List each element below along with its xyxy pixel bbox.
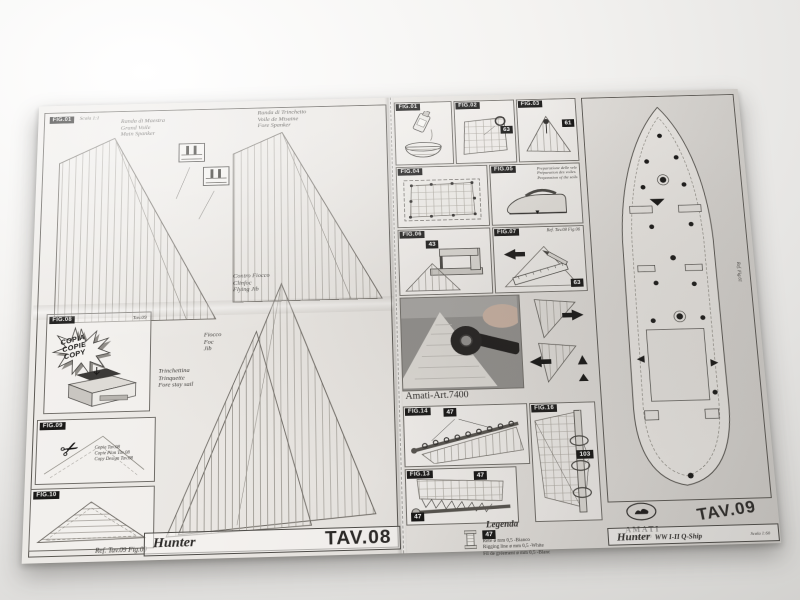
sail-sheet-with-ring [457,109,514,161]
ship-subtitle: WW I-II Q-Ship [655,532,703,541]
fig-label: FIG.06 [400,231,425,239]
cutter-photo-drawing [401,296,522,389]
tav09-deck-column: Ref. Fig.61 AMATI Art.1450 TAV.09 Hunter… [577,89,782,548]
sail-with-pin [519,107,574,159]
deck-plan-drawing [581,94,770,501]
ship-name: Hunter [153,535,196,552]
arrow-down-icon: ▼ [534,210,541,216]
gaff-lacing-panel: FIG.14 47 [403,403,530,467]
hatched-sail-panel: FIG.10 [28,486,155,552]
legend-lines: Refe ø mm 0,5 -BiancoRigging line ø mm 0… [483,537,551,558]
fig-label: FIG.03 [518,101,543,108]
legend-part-number: 47 [482,530,496,539]
bottle-and-bowl-icon [396,110,450,162]
copy-instruction-panel: FIG.08 Tav.09 COPIACOPIECOPY [43,311,151,414]
cut-note: Copia Tav.08Copie Plan Tav.08Copy Design… [94,445,133,463]
part-number: 63 [500,126,513,134]
hatched-sail-drawing [31,493,149,549]
fig-label: FIG.05 [491,166,516,174]
plan-paper: FIG.01 Scala 1:1 Randa di MaestraGrand V… [22,89,782,564]
mast-hoops-panel: FIG.16 103 [529,401,603,522]
boom-lacing-panel: FIG.13 47 47 [405,466,519,525]
part-number: 63 [570,279,583,287]
gaff-lacing-drawing [405,408,526,464]
sewing-machine-icon [401,237,490,293]
tav09-number: TAV.09 [695,497,758,525]
step-panel-sewing: FIG.06 43 [398,228,494,296]
part-number: 61 [562,119,575,127]
sail-arrows-diagram [522,293,592,386]
pinned-sail-board [399,174,486,226]
sail-corner-detail-inset [203,166,230,186]
photo-caption: Amati-Art.7400 [405,390,469,402]
tav08-number: TAV.08 [325,527,392,551]
ship-name: Hunter [617,531,651,544]
part-number-103: 103 [576,450,593,459]
thread-spool-icon [464,530,477,550]
step-panel-tack-pin: FIG.03 61 [516,98,580,162]
photocopier-icon [60,364,144,411]
sail-corner-detail-inset [178,143,205,162]
ref-note: Ref. Tav.09 Fig.09 [95,545,147,554]
step-panel-pinboard: FIG.04 [396,165,490,228]
photo-of-plan-sheets: { "icons": { "scissors": "✂", "arrow_dow… [0,0,800,600]
scale-note: Scala 1:1 [80,116,100,122]
iron-note: Preparazione delle velePréparation des v… [537,165,578,180]
step-panel-marking: FIG.07 Ref. Tav.08 Fig.06 63 [492,225,588,293]
cut-instruction-panel: FIG.09 ✂ Copia Tav.08Copie Plan Tav.08Co… [35,417,156,485]
sheet-tav09: FIG.01 FIG.02 [390,89,782,553]
mast-hoops-drawing [530,404,601,519]
tav09-title-block: Hunter WW I-II Q-Ship Scala 1:60 [607,523,780,545]
sheet-tav08: FIG.01 Scala 1:1 Randa di MaestraGrand V… [22,98,403,564]
ref-tav08-note: Ref. Tav.08 Fig.06 [547,228,581,233]
fig-label: FIG.02 [455,102,480,109]
legend-title: Legenda [486,519,519,530]
legend-block: Legenda 47 Refe ø mm 0,5 -BiancoRigging … [462,518,605,551]
ship-name-group: Hunter WW I-II Q-Ship [616,525,702,545]
part-number-47: 47 [411,512,425,521]
step-panel-dye: FIG.01 [394,101,454,165]
fig-label: FIG.01 [396,104,421,111]
fig-label: FIG.07 [494,229,519,237]
step-panel-sheet-ring: FIG.02 63 [453,100,517,164]
scale-label: Scala 1:60 [750,530,770,535]
step-panel-ironing: FIG.05 Preparazione delle velePréparatio… [489,163,583,226]
amati-logo-oval [621,501,663,524]
fore-stay-sail-label: TrinchettinaTrinquetteFore stay sail [158,367,193,389]
rotary-cutter-photo: FIG.11 [400,295,525,392]
jib-sail-templates [144,275,397,555]
tav09-steps-column: FIG.01 FIG.02 [391,93,607,553]
fig01-label: FIG.01 [50,117,75,124]
